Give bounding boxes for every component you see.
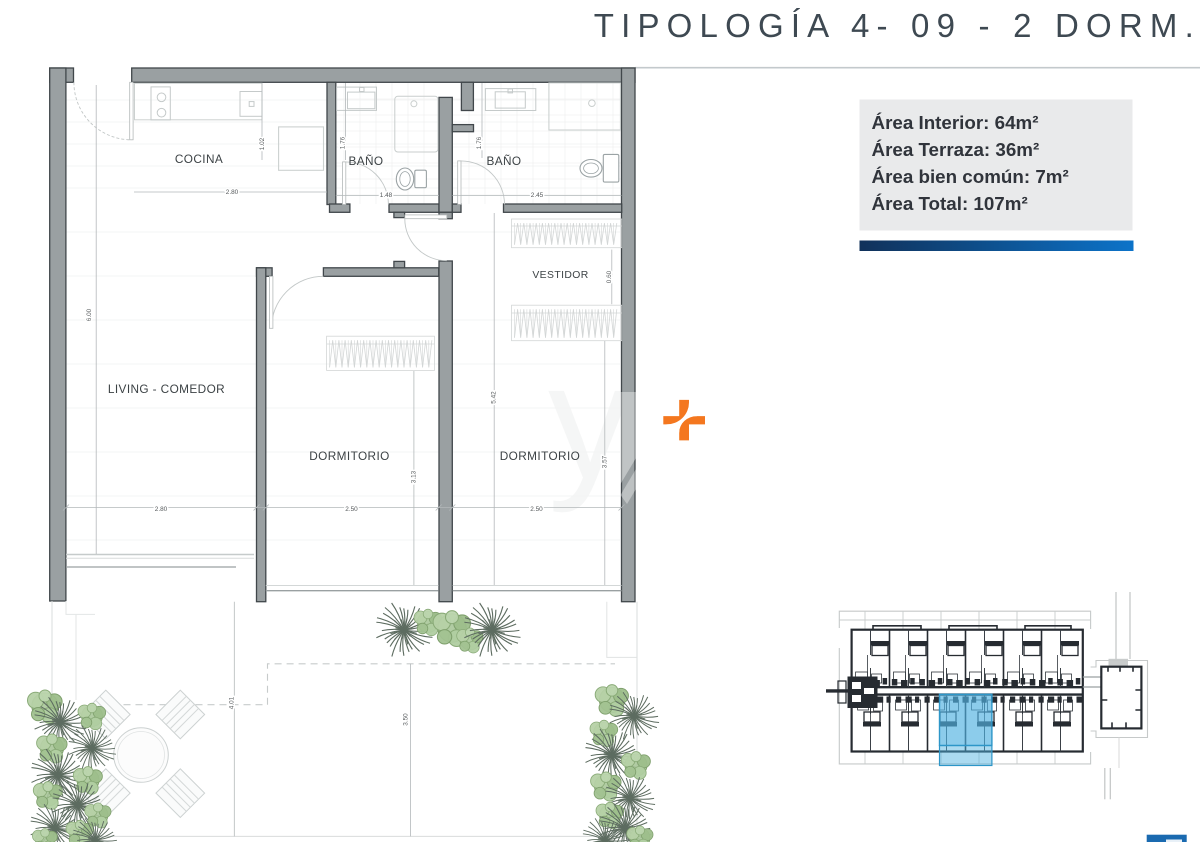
svg-text:6.00: 6.00	[86, 308, 93, 321]
svg-text:Área bien común: 7m²: Área bien común: 7m²	[872, 166, 1069, 187]
svg-text:3.13: 3.13	[411, 470, 418, 483]
svg-text:DORMITORIO: DORMITORIO	[309, 449, 389, 463]
svg-text:2.45: 2.45	[531, 192, 544, 199]
svg-text:1.02: 1.02	[259, 137, 266, 150]
svg-text:COCINA: COCINA	[175, 152, 223, 166]
svg-text:4.01: 4.01	[229, 696, 236, 709]
svg-text:3.57: 3.57	[602, 455, 609, 468]
svg-text:DORMITORIO: DORMITORIO	[500, 449, 580, 463]
svg-text:3.50: 3.50	[403, 713, 410, 726]
svg-text:Área Interior: 64m²: Área Interior: 64m²	[872, 112, 1039, 133]
svg-text:1.76: 1.76	[476, 136, 483, 149]
svg-text:TIPOLOGÍA 4- 09 - 2 DORM.: TIPOLOGÍA 4- 09 - 2 DORM.	[594, 7, 1200, 44]
svg-text:VESTIDOR: VESTIDOR	[532, 270, 588, 281]
svg-text:1.76: 1.76	[340, 136, 347, 149]
svg-text:BAÑO: BAÑO	[348, 154, 383, 168]
svg-text:5.42: 5.42	[491, 391, 498, 404]
svg-text:2.50: 2.50	[345, 506, 358, 513]
svg-text:y: y	[548, 329, 631, 513]
svg-text:2.80: 2.80	[226, 189, 239, 196]
svg-text:Área Terraza: 36m²: Área Terraza: 36m²	[872, 139, 1040, 160]
svg-text:BAÑO: BAÑO	[486, 154, 521, 168]
svg-text:2.80: 2.80	[155, 506, 168, 513]
svg-text:2.50: 2.50	[530, 506, 543, 513]
svg-text:1.48: 1.48	[380, 192, 393, 199]
svg-text:0.60: 0.60	[606, 270, 613, 283]
svg-text:LIVING - COMEDOR: LIVING - COMEDOR	[108, 382, 225, 396]
svg-text:Área Total: 107m²: Área Total: 107m²	[872, 193, 1028, 214]
